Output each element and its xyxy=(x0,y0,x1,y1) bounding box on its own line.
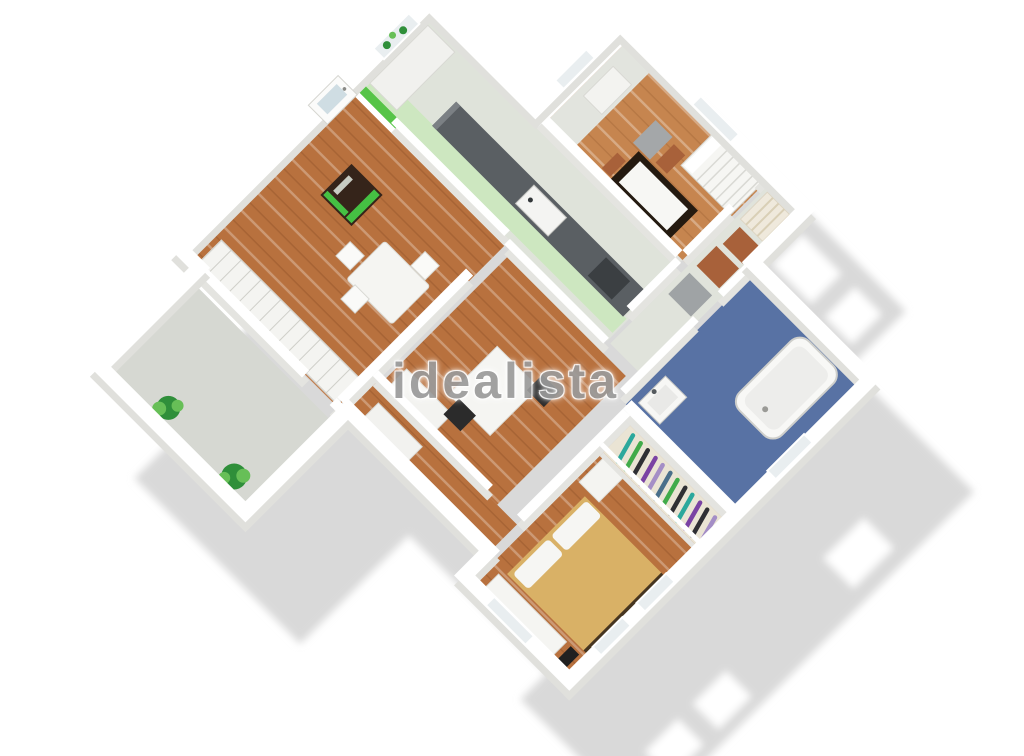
floorplan-stage: idealista xyxy=(0,0,1024,756)
floorplan-3d-render xyxy=(0,0,1024,756)
